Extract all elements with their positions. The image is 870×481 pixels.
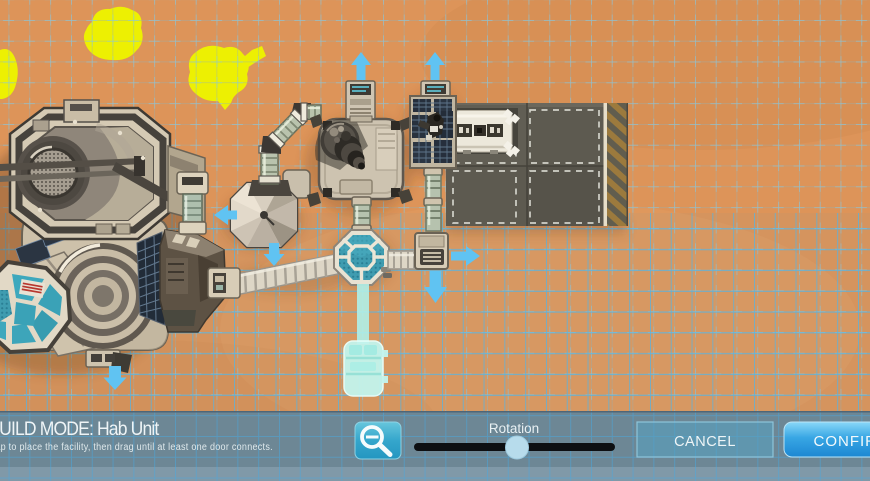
svg-text:Tap to place the facility, the: Tap to place the facility, then drag unt… (0, 441, 273, 453)
svg-text:BUILD MODE: Hab Unit: BUILD MODE: Hab Unit (0, 417, 160, 439)
svg-text:CANCEL: CANCEL (674, 434, 736, 450)
svg-text:Rotation: Rotation (489, 421, 539, 436)
svg-text:CONFIRM: CONFIRM (814, 433, 870, 450)
